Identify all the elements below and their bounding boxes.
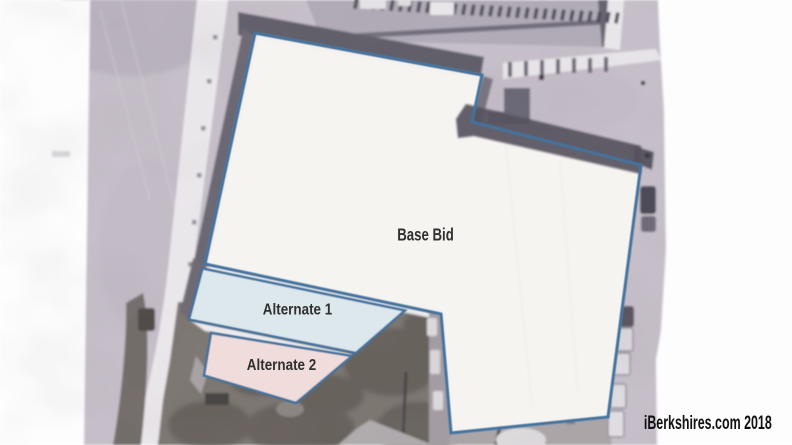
svg-text:Alternate 1: Alternate 1: [263, 301, 332, 318]
svg-text:iBerkshires.com 2018: iBerkshires.com 2018: [644, 412, 772, 433]
svg-text:Base Bid: Base Bid: [397, 225, 454, 244]
svg-text:Alternate 2: Alternate 2: [247, 357, 316, 374]
